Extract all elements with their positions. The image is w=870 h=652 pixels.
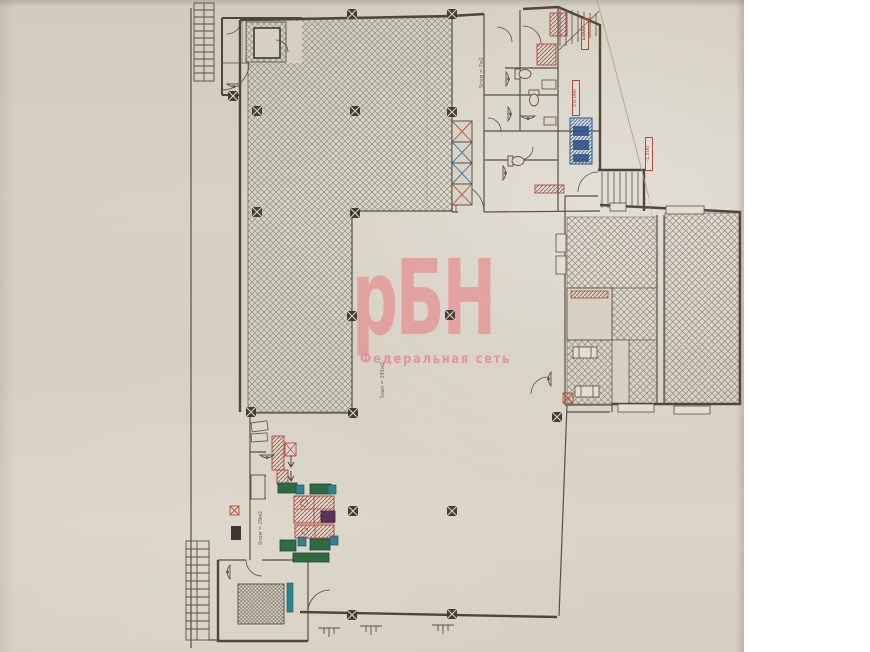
kitchen-fixtures xyxy=(231,421,338,562)
red-counter xyxy=(537,44,556,65)
corridor-gap xyxy=(612,340,629,404)
floor-plan-photo: рБН Федеральная сеть xyxy=(0,0,870,652)
ground-marks xyxy=(318,625,454,637)
ladder-top-left xyxy=(194,3,214,81)
storeroom xyxy=(238,583,293,624)
hatched-rooms-right xyxy=(567,213,739,404)
red-shelf xyxy=(571,291,608,298)
lift-shaft xyxy=(254,28,280,58)
dark-unit xyxy=(231,526,241,540)
flow-arrows xyxy=(288,455,294,481)
white-margin xyxy=(744,0,870,652)
area-label-corridor: Sпом = 7м2 xyxy=(480,52,486,88)
elevation-label-2: ±0.000 xyxy=(572,80,580,116)
dock-lift xyxy=(570,118,592,164)
shelf-racks xyxy=(452,121,472,205)
red-shelf xyxy=(535,185,564,193)
elevation-label-1: 1.000 xyxy=(581,18,589,50)
red-counter xyxy=(550,13,567,36)
hatched-hall-left xyxy=(243,17,452,412)
purple-unit xyxy=(321,511,335,522)
elevation-label-3: -1.500 xyxy=(645,137,653,171)
ladder-bottom-left xyxy=(186,541,209,640)
area-label-kitchen: Sпом = 29м2 xyxy=(259,511,265,545)
area-label-hall: Sзал = 291м2 xyxy=(381,366,387,398)
paper-edge-shadow xyxy=(736,0,744,652)
